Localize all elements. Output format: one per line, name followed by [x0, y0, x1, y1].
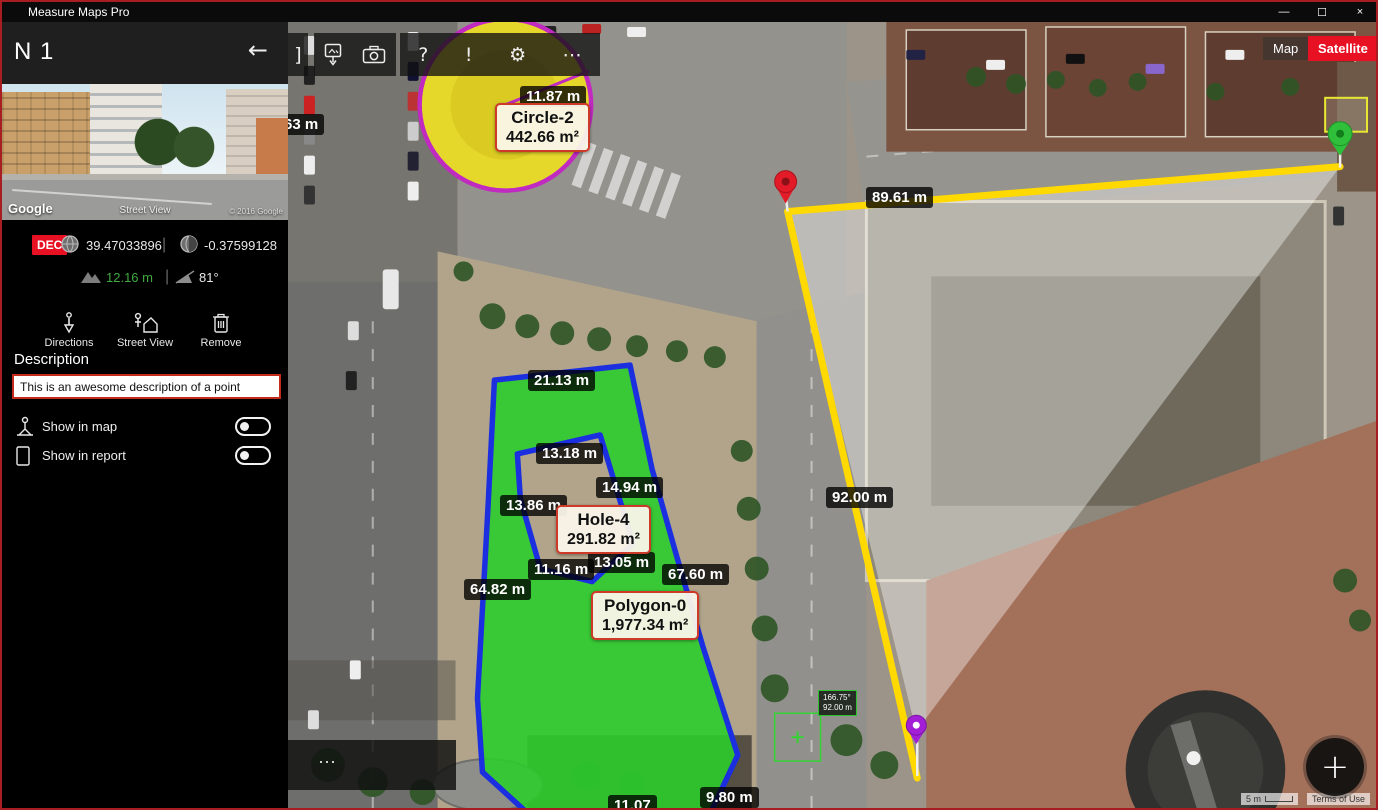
thumb-palm-tree — [170, 124, 218, 170]
show-in-map-label: Show in map — [42, 419, 117, 434]
scale-value: 5 m — [1246, 794, 1261, 804]
scale-bar — [1265, 796, 1293, 802]
toolbar-segment: ? ! ⚙ ⋯ — [400, 33, 600, 76]
collapsed-panel[interactable]: ⋯ — [288, 740, 456, 790]
close-button[interactable]: × — [1348, 6, 1372, 18]
toolbar-segment — [314, 33, 352, 76]
distance-label: 21.13 m — [528, 370, 595, 391]
shape-area: 291.82 m² — [567, 530, 640, 550]
street-view-watermark: Street View — [120, 205, 171, 216]
map-pin-icon — [15, 416, 35, 438]
toggle-knob — [240, 451, 249, 460]
map-view-button[interactable]: Map — [1263, 37, 1308, 60]
window-title: Measure Maps Pro — [28, 5, 129, 19]
shape-name: Circle-2 — [506, 107, 579, 128]
street-view-icon — [132, 312, 158, 334]
elevation-mountain-icon — [80, 268, 102, 284]
distance-label: 13.05 m — [588, 552, 655, 573]
cursor-measure-tooltip: 166.75° 92.00 m — [818, 690, 857, 716]
latitude-globe-icon — [60, 234, 80, 254]
directions-icon — [60, 312, 78, 334]
distance-label: 67.60 m — [662, 564, 729, 585]
latitude-value: 39.47033896 — [86, 238, 162, 253]
copyright-text: © 2016 Google — [229, 207, 283, 216]
distance-label: 13.18 m — [536, 443, 603, 464]
remove-button[interactable]: Remove — [190, 312, 252, 349]
distance-label: 9.80 m — [700, 787, 759, 808]
hole-4-label-box[interactable]: Hole-4 291.82 m² — [556, 505, 651, 554]
maximize-button[interactable]: ☐ — [1310, 6, 1334, 19]
toggle-knob — [240, 422, 249, 431]
distance-label: 14.94 m — [596, 477, 663, 498]
minimize-button[interactable]: — — [1272, 6, 1296, 18]
longitude-value: -0.37599128 — [204, 238, 277, 253]
point-actions: Directions Street View Remove — [2, 312, 288, 349]
app-window: Measure Maps Pro — ☐ × N 1 ← Google Stre… — [0, 0, 1378, 810]
shape-area: 1,977.34 m² — [602, 616, 688, 636]
report-doc-icon — [15, 445, 31, 467]
street-view-button[interactable]: Street View — [114, 312, 176, 349]
more-icon[interactable]: ⋯ — [563, 44, 582, 66]
shape-area: 442.66 m² — [506, 128, 579, 148]
trash-icon — [212, 312, 230, 334]
distance-label: 92.00 m — [826, 487, 893, 508]
bearing-value: 81° — [199, 270, 219, 285]
thumb-building-orange — [256, 118, 288, 176]
scale-indicator: 5 m — [1241, 793, 1298, 805]
circle-2-label-box[interactable]: Circle-2 442.66 m² — [495, 103, 590, 152]
directions-button[interactable]: Directions — [38, 312, 100, 349]
show-in-report-row: Show in report — [2, 444, 288, 470]
panel-more-icon[interactable]: ⋯ — [318, 752, 338, 773]
distance-label: 64.82 m — [464, 579, 531, 600]
help-icon[interactable]: ? — [418, 44, 428, 66]
title-bar: Measure Maps Pro — ☐ × — [2, 2, 1376, 22]
bearing-angle-icon — [175, 270, 195, 284]
back-arrow-icon[interactable]: ← — [248, 36, 268, 64]
add-marker-icon[interactable] — [323, 43, 343, 67]
map-canvas[interactable]: 11.87 m 63 m 21.13 m 13.18 m 14.94 m 13.… — [288, 22, 1376, 808]
tooltip-angle: 166.75° — [823, 693, 852, 703]
shape-name: Hole-4 — [567, 509, 640, 530]
show-in-report-label: Show in report — [42, 448, 126, 463]
satellite-view-button[interactable]: Satellite — [1308, 36, 1376, 61]
distance-label: 63 m — [288, 114, 324, 135]
add-fab-button[interactable]: + — [1306, 738, 1364, 796]
shape-name: Polygon-0 — [602, 595, 688, 616]
google-logo: Google — [8, 201, 53, 216]
show-in-map-toggle[interactable] — [235, 417, 271, 436]
point-name: N 1 — [14, 38, 54, 66]
distance-label: 89.61 m — [866, 187, 933, 208]
description-input[interactable] — [12, 374, 281, 399]
street-view-thumbnail[interactable]: Google Street View © 2016 Google — [2, 84, 288, 220]
settings-gear-icon[interactable]: ⚙ — [509, 44, 526, 66]
toolbar-segment — [352, 33, 396, 76]
remove-label: Remove — [201, 337, 242, 349]
tooltip-distance: 92.00 m — [823, 703, 852, 713]
camera-icon[interactable] — [362, 45, 386, 65]
street-view-label: Street View — [117, 337, 173, 349]
thumb-building-left — [2, 92, 97, 176]
description-heading: Description — [14, 351, 89, 368]
toolbar-segment: ] — [288, 33, 308, 76]
plus-icon: + — [1306, 738, 1364, 796]
point-detail-sidebar: N 1 ← Google Street View © 2016 Google D… — [2, 22, 288, 808]
sidebar-header: N 1 ← — [2, 22, 288, 84]
coord-divider: | — [162, 236, 166, 254]
longitude-globe-icon — [179, 234, 199, 254]
show-in-report-toggle[interactable] — [235, 446, 271, 465]
distance-label: 11.16 m — [528, 559, 594, 580]
alert-icon[interactable]: ! — [465, 44, 473, 66]
distance-label: 11.07 — [608, 795, 657, 808]
directions-label: Directions — [45, 337, 94, 349]
elevation-value: 12.16 m — [106, 270, 153, 285]
elev-divider: | — [165, 268, 169, 286]
clipped-icon[interactable]: ] — [294, 44, 301, 66]
show-in-map-row: Show in map — [2, 415, 288, 441]
polygon-0-label-box[interactable]: Polygon-0 1,977.34 m² — [591, 591, 699, 640]
